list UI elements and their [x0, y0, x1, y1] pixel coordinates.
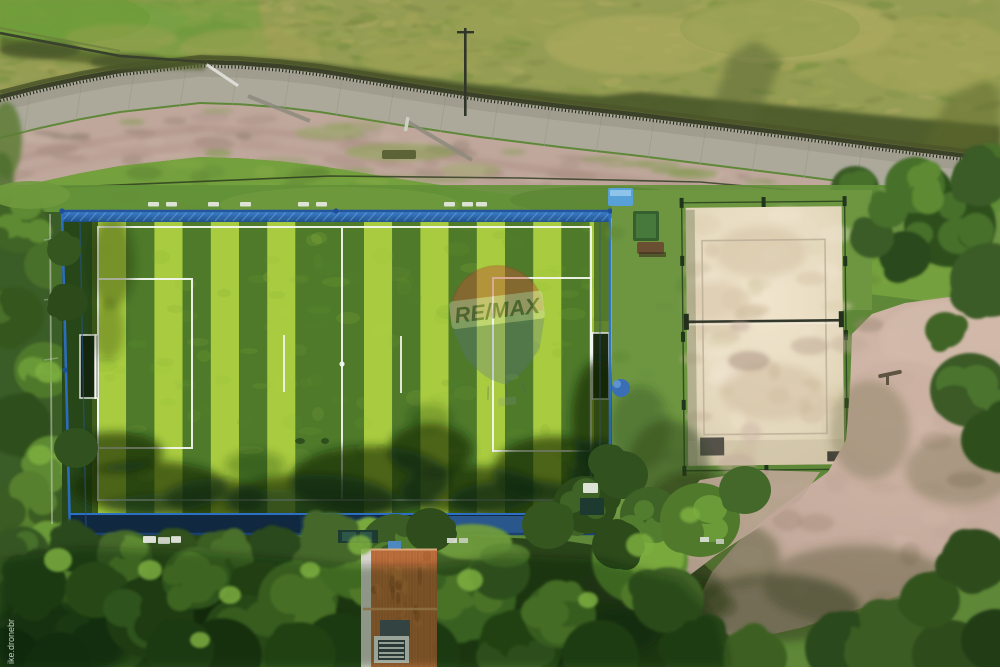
svg-text:ike.dronebr: ike.dronebr	[6, 619, 16, 664]
